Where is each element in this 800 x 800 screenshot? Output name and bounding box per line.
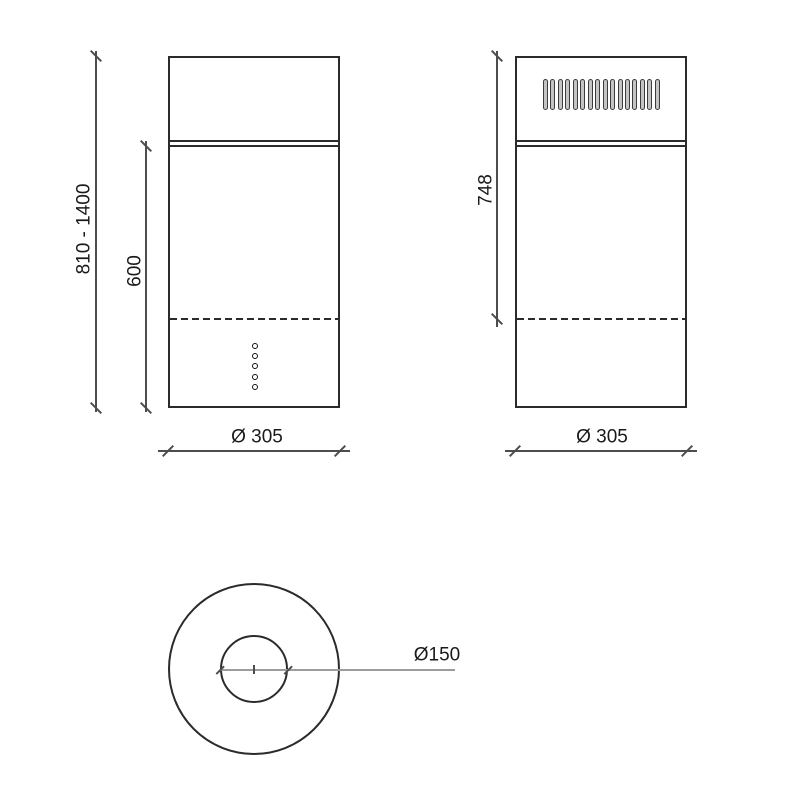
grille-slot	[588, 79, 593, 110]
control-buttons	[252, 343, 258, 390]
vent-grille	[543, 79, 660, 110]
duct-leader-line	[220, 669, 455, 671]
grille-slot	[640, 79, 645, 110]
grille-slot	[558, 79, 563, 110]
dimension-line	[95, 51, 97, 412]
dimension-label-side-width: Ø 305	[576, 428, 628, 447]
grille-slot	[595, 79, 600, 110]
grille-slot	[603, 79, 608, 110]
grille-slot	[618, 79, 623, 110]
control-button-dot	[252, 343, 258, 349]
circle-center-mark	[253, 665, 255, 674]
side-view-chimney-seam-top-line	[517, 140, 685, 142]
grille-slot	[632, 79, 637, 110]
grille-slot	[573, 79, 578, 110]
grille-slot	[550, 79, 555, 110]
dimension-label-body-height: 600	[126, 255, 145, 287]
dimension-label-total-height: 810 - 1400	[75, 184, 94, 275]
control-button-dot	[252, 384, 258, 390]
dimension-line	[505, 450, 697, 452]
front-view-chimney-seam-top-line	[170, 140, 338, 142]
dimension-line	[158, 450, 350, 452]
control-button-dot	[252, 363, 258, 369]
control-button-dot	[252, 353, 258, 359]
dimension-label-front-width: Ø 305	[231, 428, 283, 447]
dimension-label-upper-height: 748	[477, 174, 496, 206]
side-view-chimney-seam-bottom-line	[517, 145, 685, 147]
front-view-filter-dashed-line	[170, 318, 338, 320]
grille-slot	[565, 79, 570, 110]
dimension-label-duct-diameter: Ø150	[414, 646, 460, 665]
grille-slot	[625, 79, 630, 110]
grille-slot	[647, 79, 652, 110]
grille-slot	[580, 79, 585, 110]
grille-slot	[610, 79, 615, 110]
control-button-dot	[252, 374, 258, 380]
side-view-filter-dashed-line	[517, 318, 685, 320]
grille-slot	[655, 79, 660, 110]
front-view-chimney-seam-bottom-line	[170, 145, 338, 147]
technical-drawing-canvas: 810 - 1400 600 Ø 305 748 Ø 305	[0, 0, 800, 800]
grille-slot	[543, 79, 548, 110]
